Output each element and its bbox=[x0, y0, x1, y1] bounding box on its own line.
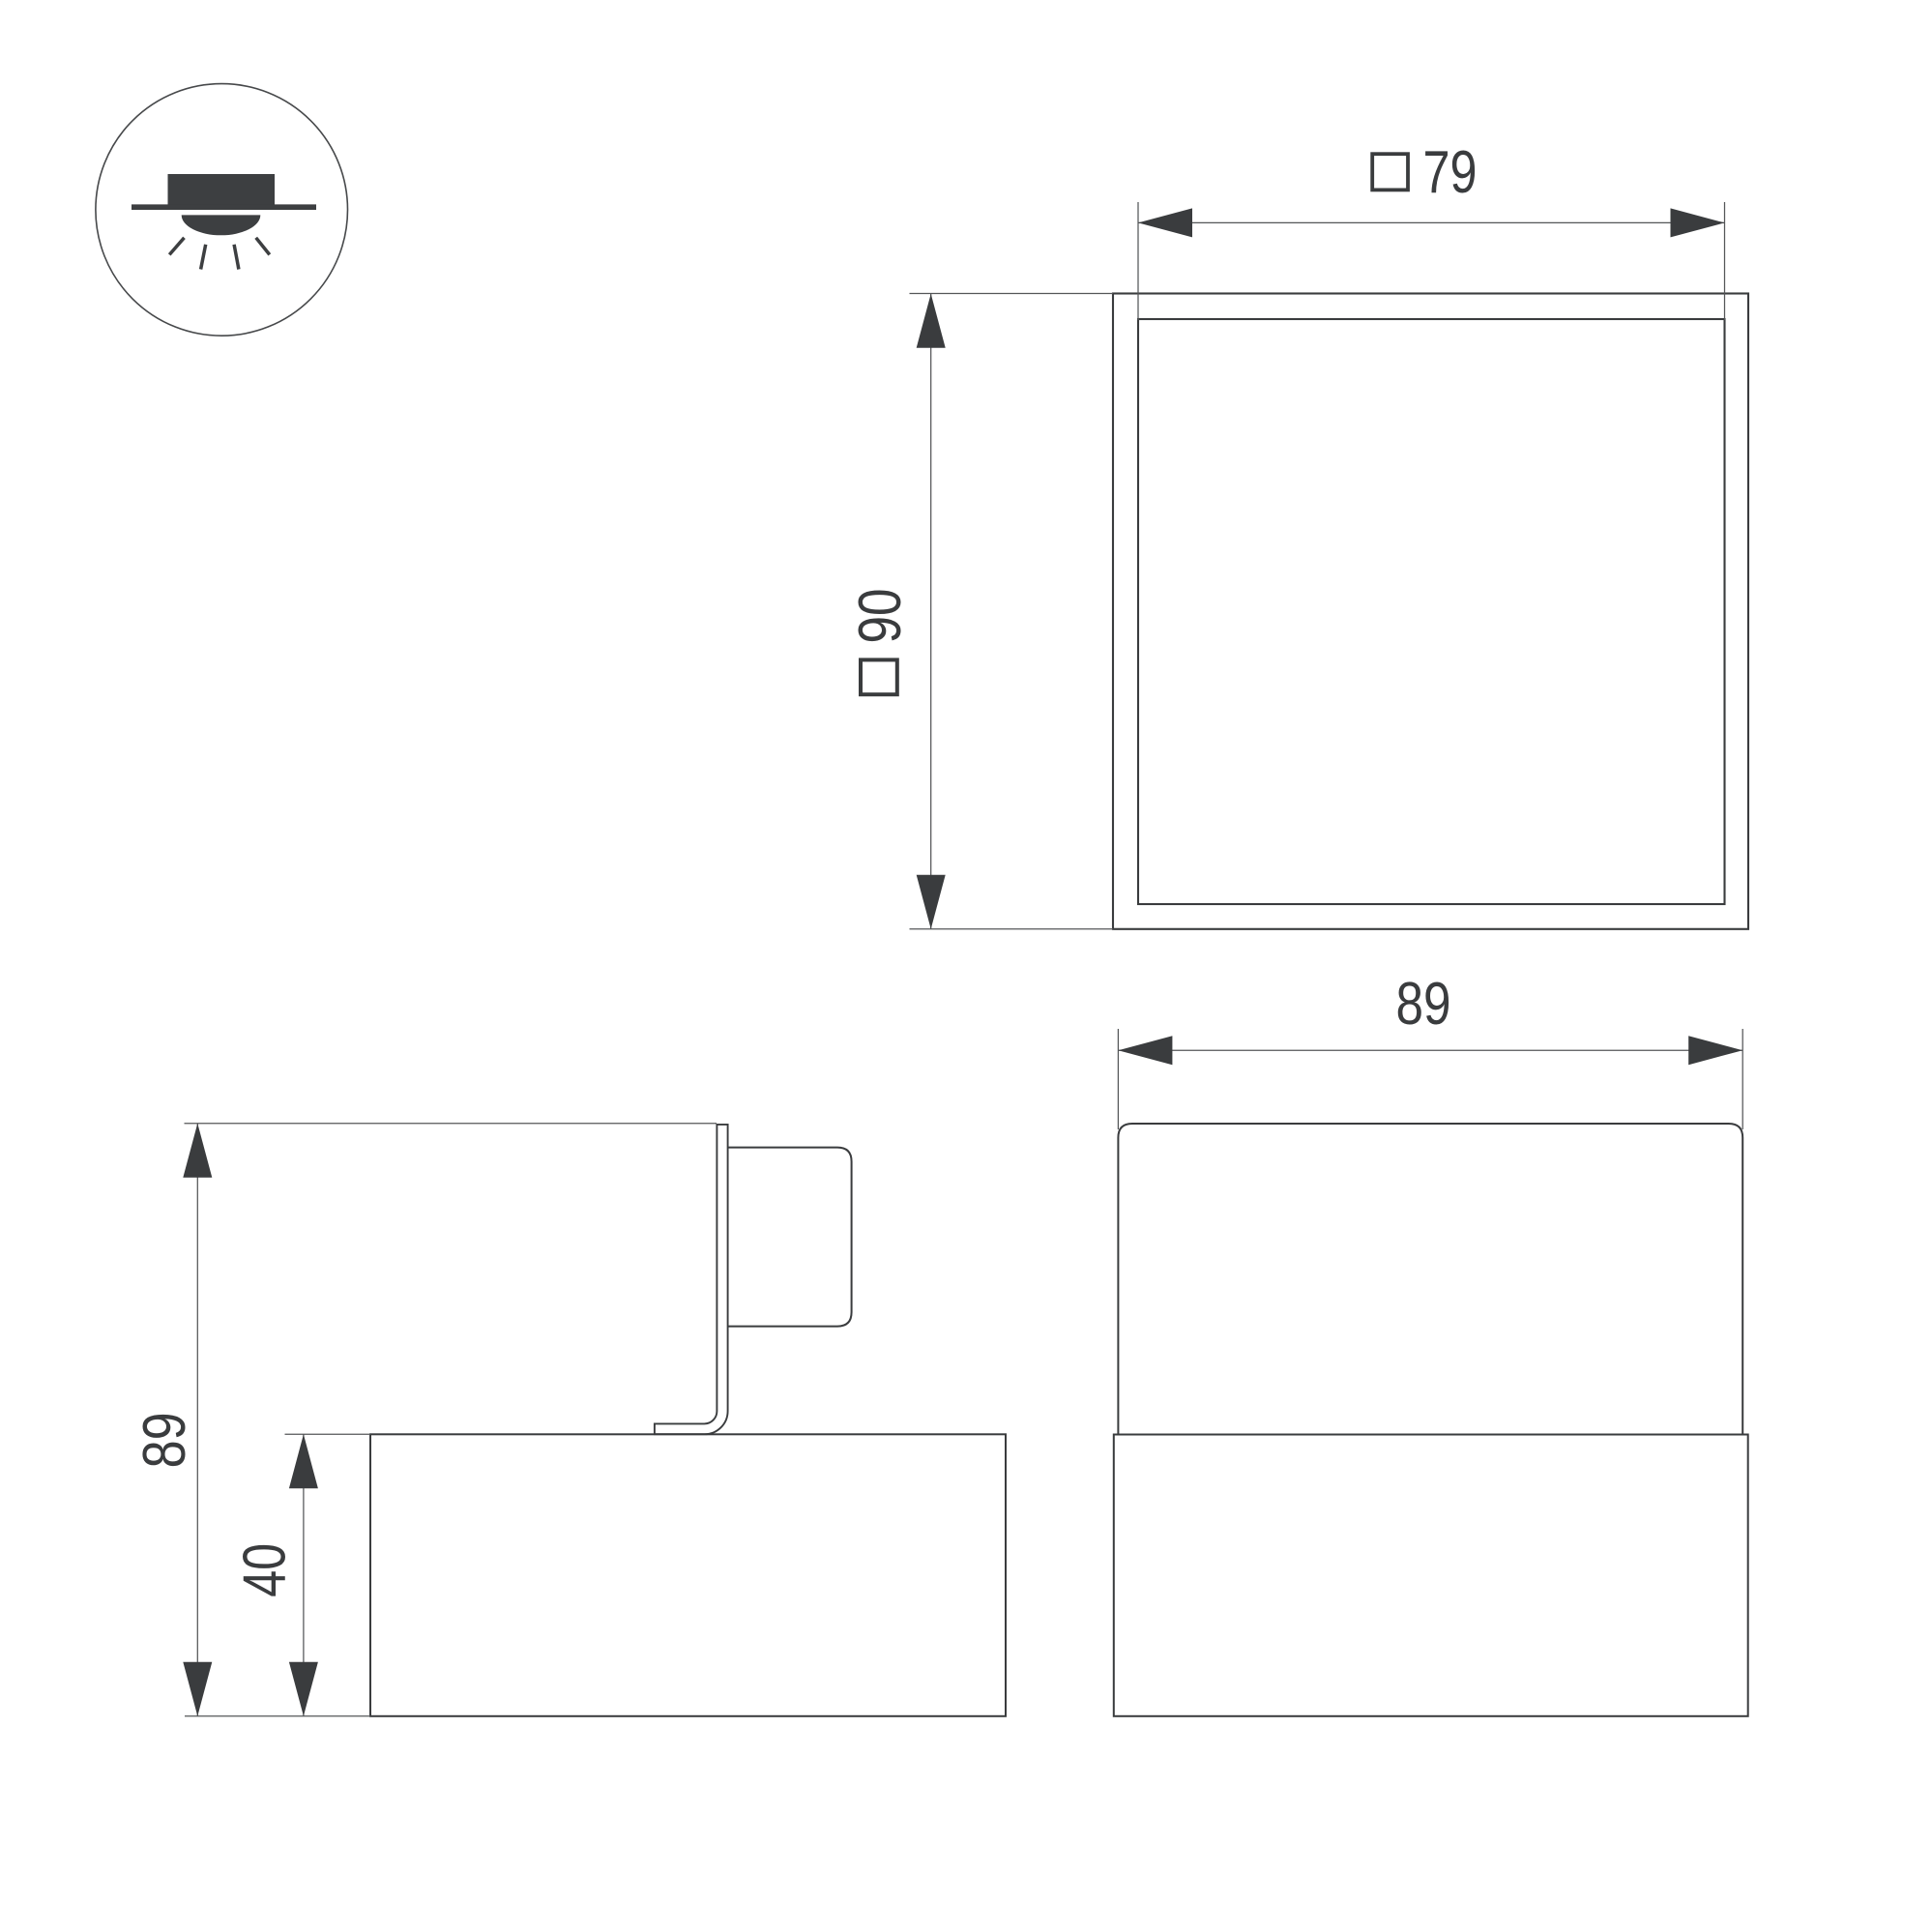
svg-text:40: 40 bbox=[231, 1543, 298, 1597]
svg-text:79: 79 bbox=[1423, 139, 1478, 206]
svg-text:90: 90 bbox=[847, 589, 914, 644]
svg-text:89: 89 bbox=[132, 1412, 198, 1468]
svg-text:89: 89 bbox=[1396, 971, 1451, 1038]
